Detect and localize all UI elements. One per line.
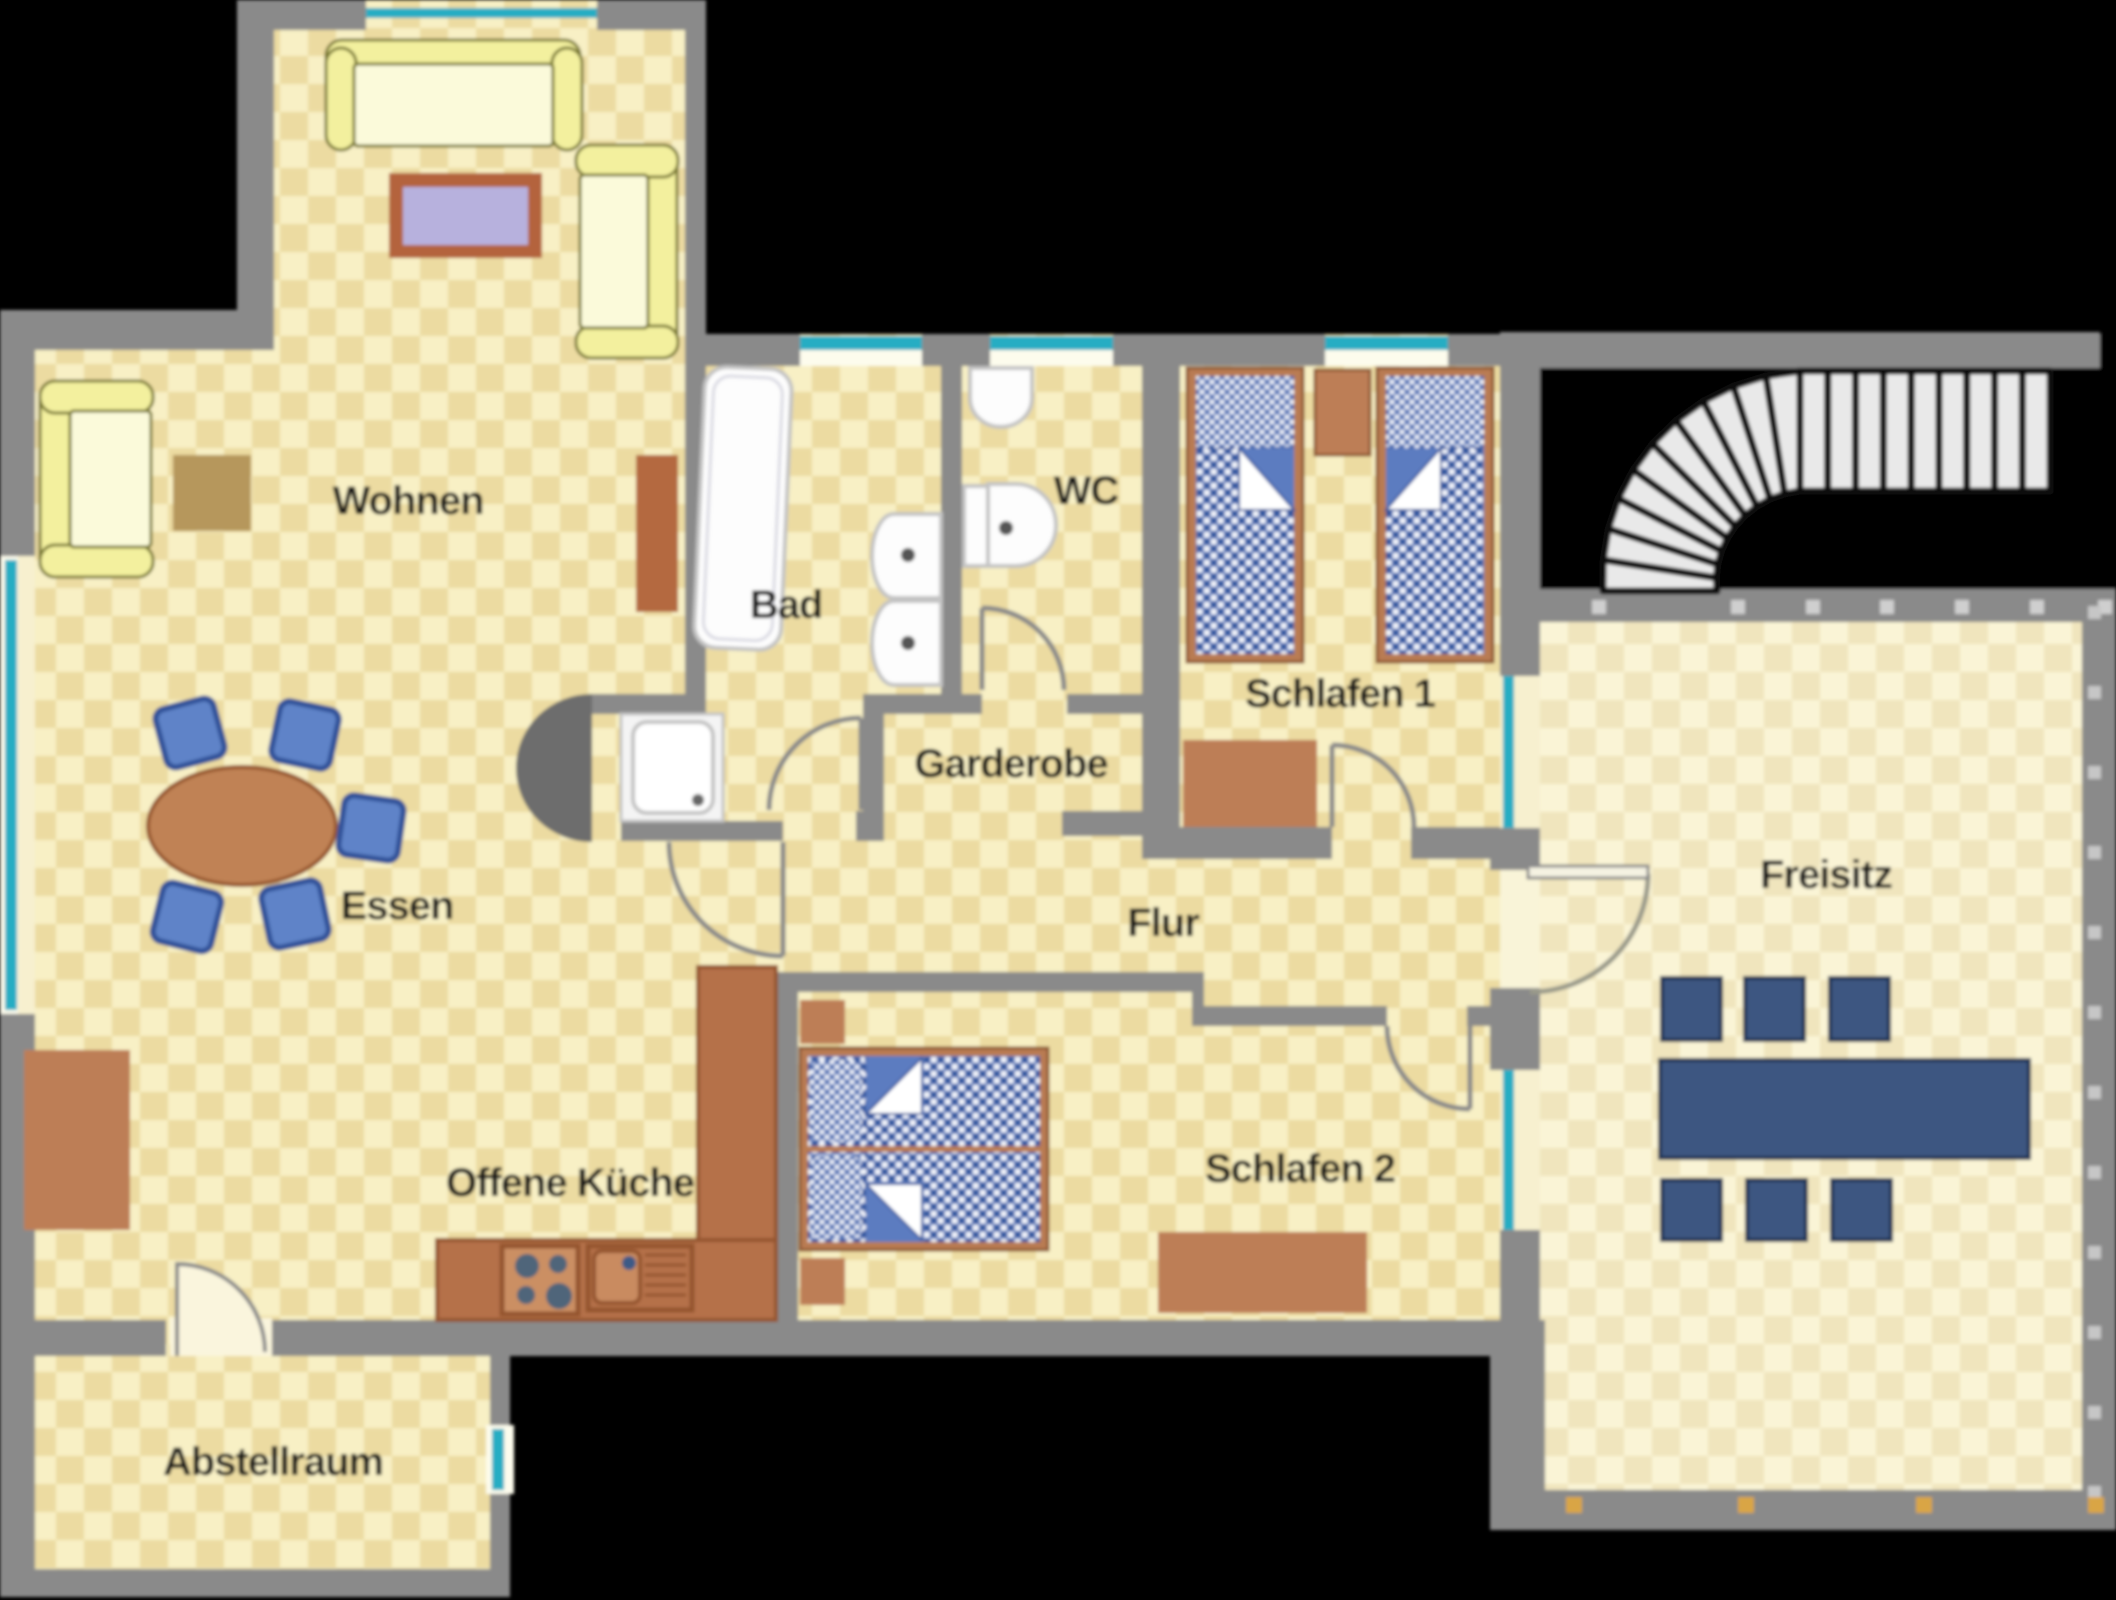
svg-text:Essen: Essen [341,884,454,928]
svg-text:Flur: Flur [1127,901,1199,945]
svg-text:WC: WC [1054,469,1119,513]
svg-text:Garderobe: Garderobe [914,742,1107,786]
svg-text:Schlafen 2: Schlafen 2 [1205,1147,1395,1191]
svg-text:Offene Küche: Offene Küche [446,1161,694,1205]
svg-text:Wohnen: Wohnen [332,479,483,523]
svg-text:Bad: Bad [750,583,823,627]
svg-text:Abstellraum: Abstellraum [163,1440,383,1484]
svg-text:Freisitz: Freisitz [1760,853,1892,897]
svg-text:Schlafen 1: Schlafen 1 [1245,672,1436,716]
